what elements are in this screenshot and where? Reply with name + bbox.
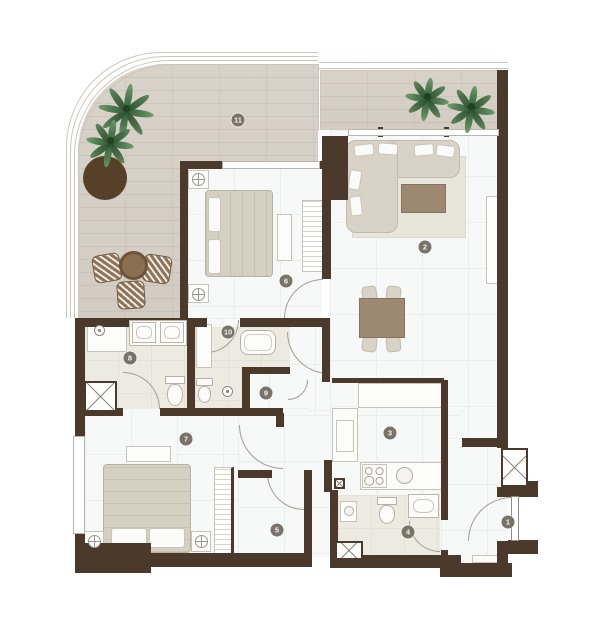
- kitchen-counter-top: [358, 383, 444, 408]
- duct-shaft: [335, 541, 363, 560]
- sofa-cushion: [353, 143, 374, 157]
- wall: [276, 413, 284, 427]
- lamp-icon: [88, 535, 101, 548]
- vanity-unit: [196, 324, 212, 368]
- pillow: [208, 197, 221, 232]
- wall: [240, 318, 330, 327]
- terrace-balcony-divider: [318, 64, 319, 130]
- bathtub: [240, 330, 276, 355]
- room-number-badge: 8: [124, 352, 137, 365]
- sofa-cushion: [435, 144, 455, 158]
- balcony-railing: [319, 62, 508, 63]
- wall: [497, 487, 508, 497]
- shower-head-icon: [94, 325, 105, 336]
- wall: [440, 563, 512, 577]
- lamp-icon: [192, 173, 205, 186]
- floor-plan: 1 2 3 4 5 6 7 8 9 10 11: [0, 0, 611, 640]
- dining-table: [359, 298, 405, 338]
- wall: [322, 200, 331, 279]
- room-number-badge: 5: [271, 524, 284, 537]
- wall: [187, 318, 195, 413]
- fridge: [336, 420, 354, 452]
- room-number-badge: 10: [222, 326, 235, 339]
- toilet-icon: [165, 376, 185, 406]
- wall: [322, 318, 330, 382]
- wall: [238, 470, 272, 478]
- wardrobe: [302, 200, 324, 272]
- washbasin: [408, 494, 439, 518]
- duct-shaft: [84, 381, 117, 412]
- coffee-table: [401, 184, 446, 213]
- bench: [126, 446, 171, 462]
- wardrobe: [214, 467, 234, 555]
- wall: [497, 130, 508, 448]
- wall: [160, 408, 283, 416]
- shoe-cabinet: [472, 555, 498, 563]
- wall: [332, 378, 444, 383]
- wall: [304, 470, 312, 555]
- lamp-icon: [192, 288, 205, 301]
- wall: [462, 438, 498, 447]
- washbasin: [160, 322, 184, 343]
- washbasin: [132, 322, 156, 343]
- wall: [322, 136, 348, 200]
- wall: [75, 553, 312, 567]
- stove-icon: [362, 464, 387, 488]
- window: [348, 129, 499, 136]
- room-number-badge: 3: [384, 427, 397, 440]
- toilet-icon: [377, 497, 397, 524]
- pillow: [149, 528, 185, 548]
- wall: [242, 367, 290, 374]
- room-number-badge: 6: [280, 275, 293, 288]
- outdoor-table: [119, 251, 148, 280]
- wall: [324, 460, 332, 492]
- lamp-icon: [195, 535, 208, 548]
- room-number-badge: 7: [180, 433, 193, 446]
- sofa-cushion: [378, 142, 399, 155]
- wall: [242, 367, 250, 416]
- toilet-icon: [196, 378, 213, 403]
- balcony-railing: [319, 68, 508, 69]
- wall: [508, 540, 538, 554]
- room-number-badge: 4: [402, 526, 415, 539]
- sofa-cushion: [414, 143, 435, 157]
- wall: [441, 380, 448, 520]
- pillow: [208, 239, 221, 274]
- wall: [497, 70, 508, 130]
- shower-head-icon: [222, 386, 233, 397]
- window: [222, 161, 320, 169]
- window: [73, 436, 85, 534]
- duct-shaft: [501, 448, 528, 487]
- bench: [277, 214, 292, 261]
- outdoor-chair: [116, 280, 146, 310]
- kitchen-sink-icon: [396, 467, 413, 484]
- sofa-cushion: [349, 195, 363, 216]
- room-number-badge: 2: [419, 241, 432, 254]
- room-number-badge: 11: [232, 114, 245, 127]
- washing-machine-drum-icon: [344, 506, 354, 516]
- wall: [180, 161, 188, 318]
- room-number-badge: 1: [502, 516, 515, 529]
- duct-shaft: [334, 478, 345, 489]
- room-number-badge: 9: [260, 387, 273, 400]
